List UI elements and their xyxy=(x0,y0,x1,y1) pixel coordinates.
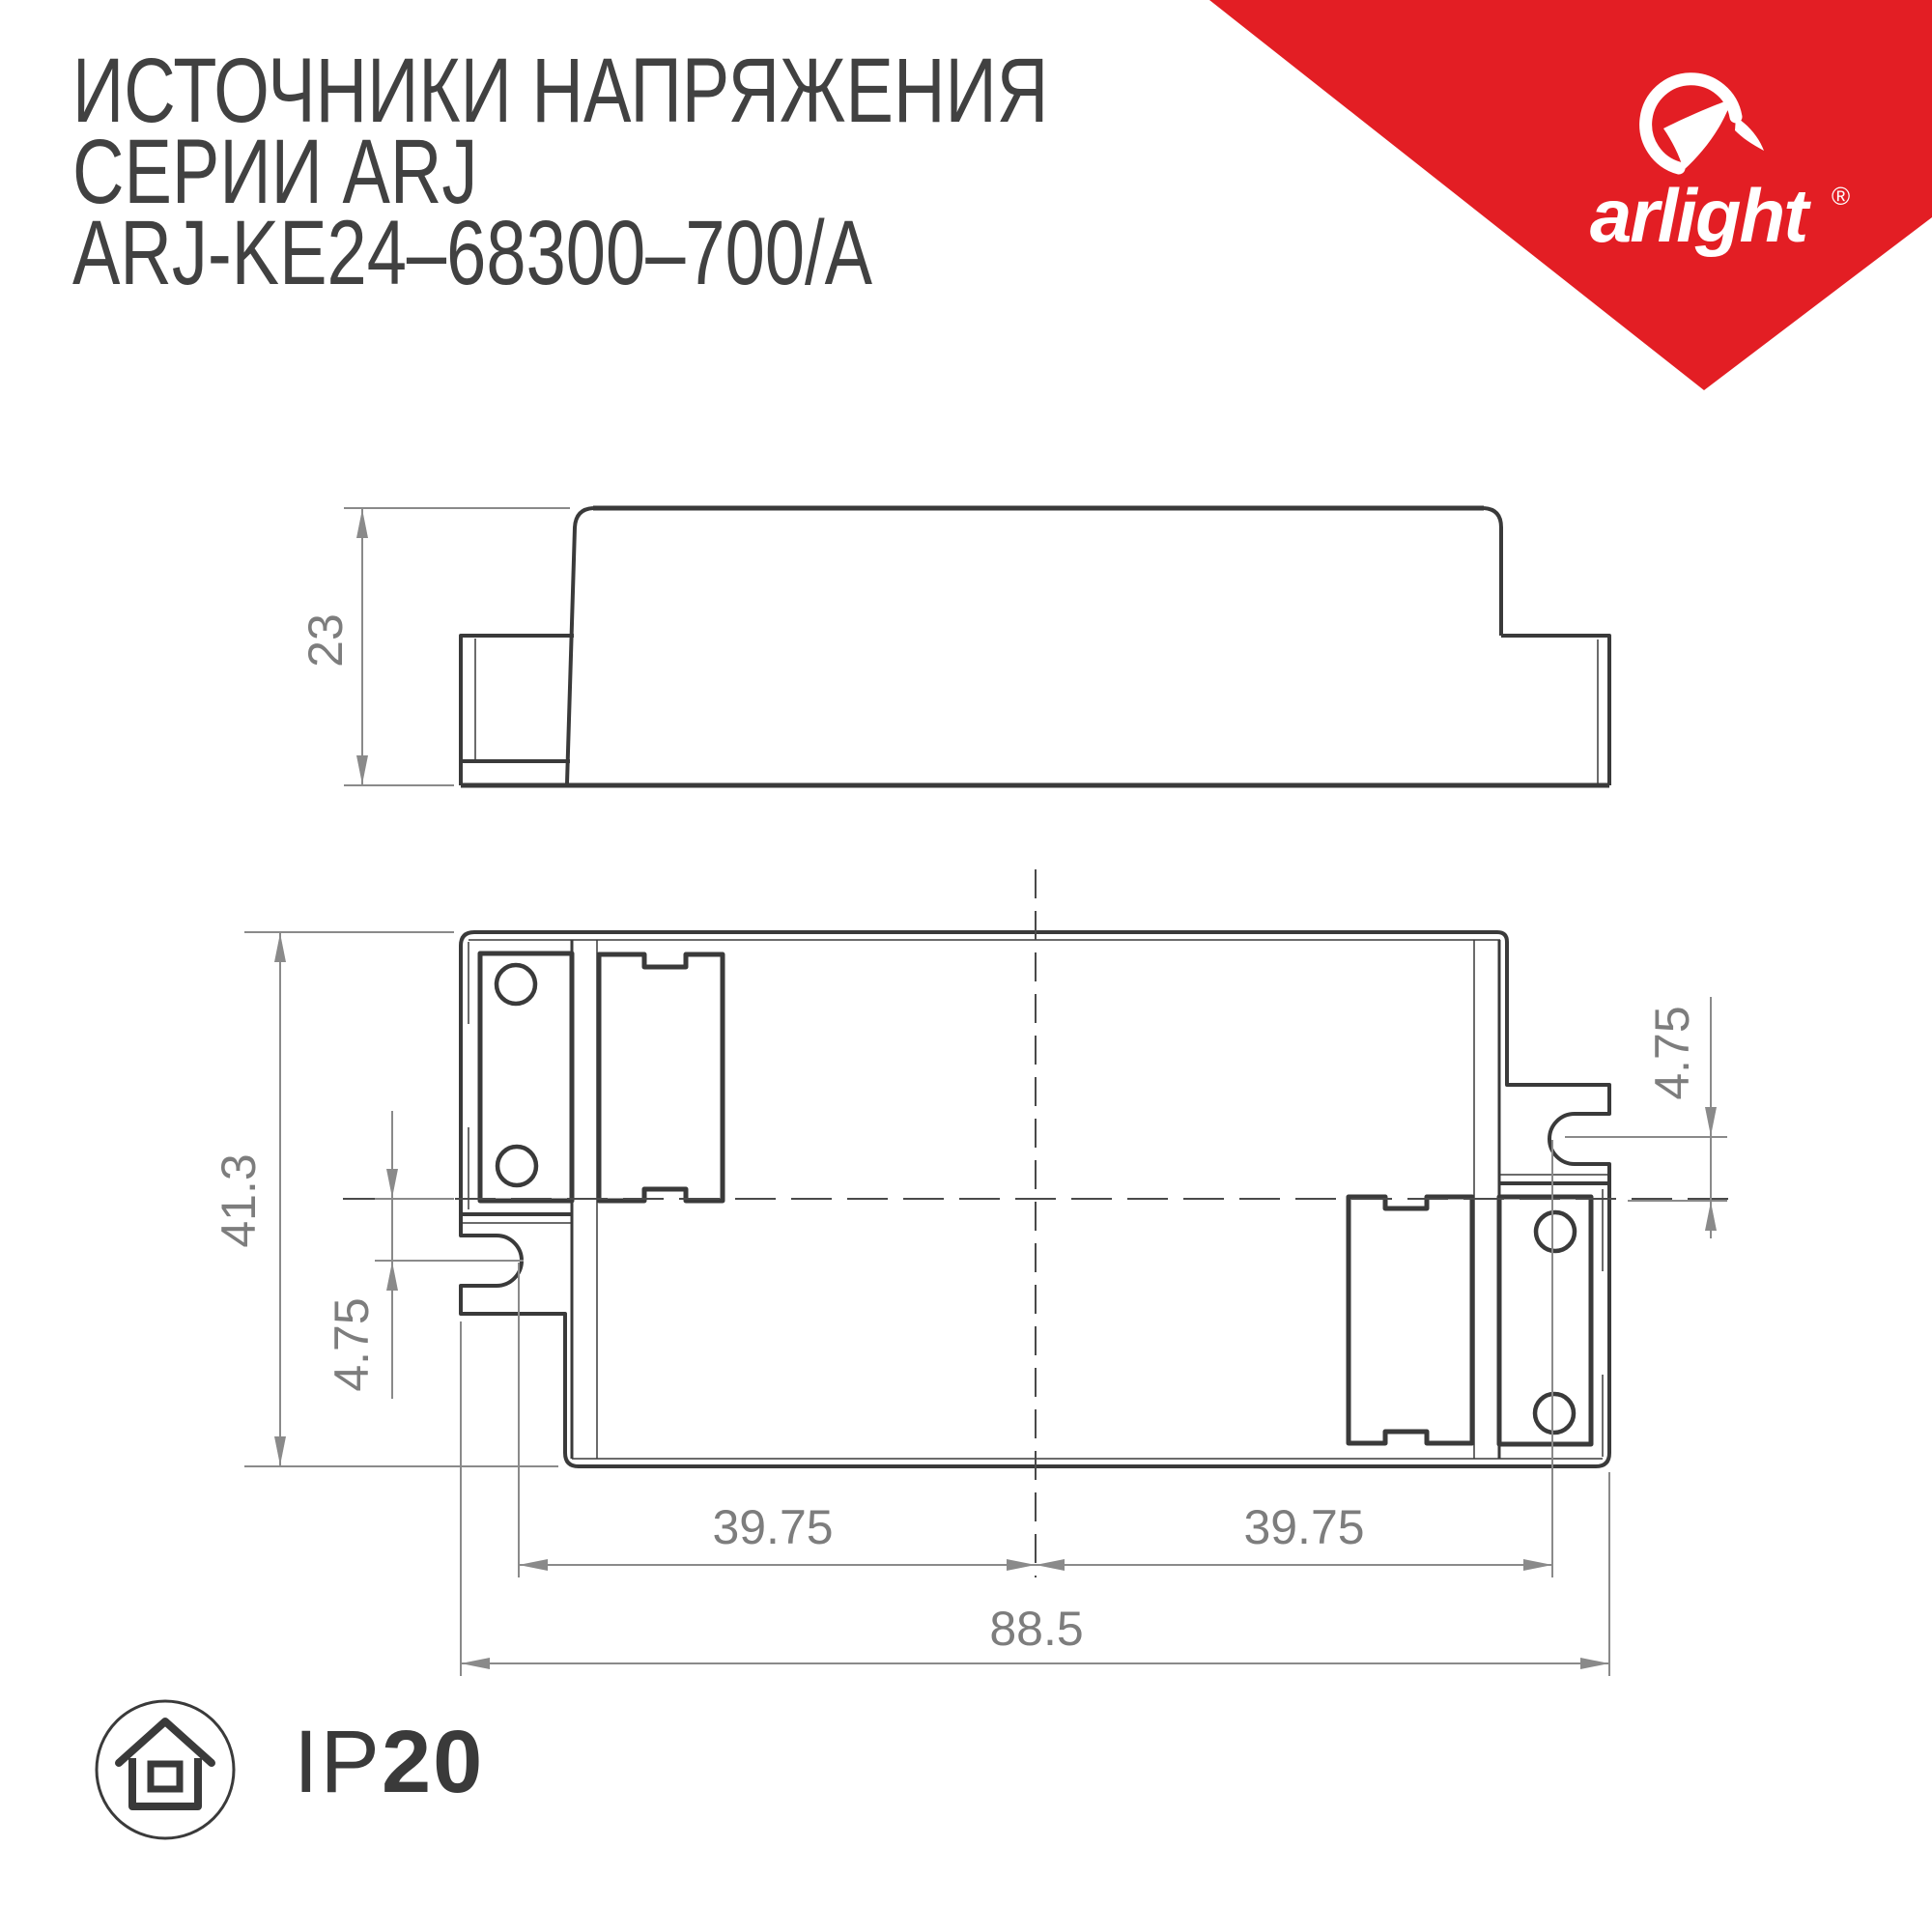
brand-banner: arlight ® xyxy=(1209,0,1932,390)
dim-slot-offset-right-label: 4.75 xyxy=(1645,1006,1699,1099)
ip-value: 20 xyxy=(382,1713,484,1811)
side-view-drawing xyxy=(461,508,1609,785)
house-in-circle-icon xyxy=(93,1698,238,1843)
dim-slot-offset-left-label: 4.75 xyxy=(325,1297,379,1391)
terminal-bracket-left xyxy=(480,953,723,1201)
registered-trademark-icon: ® xyxy=(1832,182,1850,211)
top-view-drawing xyxy=(343,869,1739,1577)
ip-prefix: IP xyxy=(294,1713,382,1811)
dim-side-height-label: 23 xyxy=(298,613,353,668)
dim-mount-left-label: 39.75 xyxy=(712,1500,833,1554)
ip-rating-badge: IP20 xyxy=(93,1698,484,1843)
dimension-annotations xyxy=(244,508,1727,1676)
dim-total-length-label: 88.5 xyxy=(989,1602,1083,1656)
ip-rating-text: IP20 xyxy=(294,1712,484,1813)
banner-shape xyxy=(1209,0,1932,390)
technical-drawing: arlight ® xyxy=(0,0,1932,1932)
dimension-labels: 23 41.3 4.75 4.75 39.75 39.75 88.5 xyxy=(212,613,1699,1656)
arlight-logo-text: arlight xyxy=(1590,173,1811,258)
dim-mount-right-label: 39.75 xyxy=(1243,1500,1364,1554)
terminal-bracket-right xyxy=(1349,1197,1591,1444)
dim-depth-label: 41.3 xyxy=(212,1153,266,1247)
